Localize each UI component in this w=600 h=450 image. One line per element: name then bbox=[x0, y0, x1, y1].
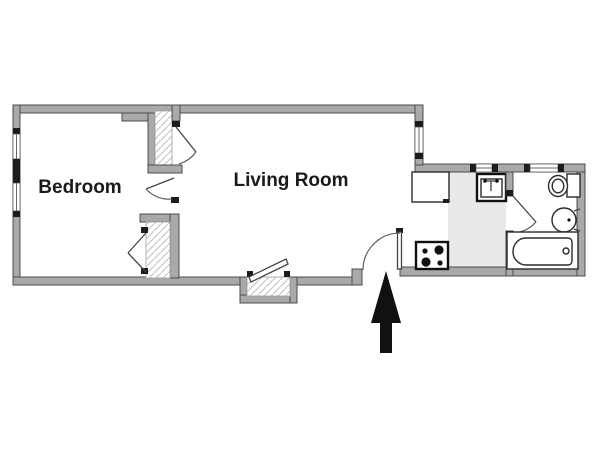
closet-door-arc bbox=[179, 152, 196, 164]
door-jamb-cap bbox=[506, 190, 513, 196]
closet-right-wall bbox=[170, 214, 179, 278]
door-jamb-cap bbox=[172, 121, 180, 127]
stove-burner bbox=[437, 260, 442, 265]
closet-hatch bbox=[146, 222, 170, 278]
window-cap bbox=[415, 121, 423, 127]
stove-burner bbox=[421, 257, 430, 266]
door-jamb-cap bbox=[141, 227, 148, 233]
bathtub-icon bbox=[507, 232, 578, 269]
window-cap bbox=[415, 153, 423, 159]
bedroom-door-leaf bbox=[146, 178, 174, 189]
bedroom-windows bbox=[13, 128, 20, 217]
closet-ledge-wall bbox=[122, 113, 149, 121]
closet-hatch bbox=[155, 111, 172, 167]
window-cap bbox=[470, 164, 476, 172]
upper-closet bbox=[122, 105, 196, 173]
entrance-door-arc bbox=[363, 233, 400, 270]
wall-segment-entry-step bbox=[352, 269, 362, 285]
wall-segment-bottom-left bbox=[13, 277, 247, 285]
bathroom-window bbox=[524, 164, 564, 172]
living-room-label: Living Room bbox=[233, 170, 348, 191]
closet-right-wall bbox=[290, 277, 297, 303]
faucet-knob bbox=[483, 179, 487, 183]
closet-left-wall bbox=[148, 113, 155, 173]
stove-icon bbox=[416, 242, 448, 269]
entrance-door bbox=[363, 228, 403, 270]
closet-right-wall bbox=[172, 105, 180, 121]
bedroom-door bbox=[146, 178, 179, 203]
window-cap bbox=[13, 128, 20, 134]
faucet-knob bbox=[495, 179, 499, 183]
bathtub-drain bbox=[563, 248, 569, 254]
window-mullion bbox=[13, 159, 20, 183]
wall-segment-bottom-mid bbox=[290, 277, 353, 285]
wall-segment-top bbox=[13, 105, 422, 113]
floor-plan-canvas: Bedroom Living Room bbox=[0, 0, 600, 450]
refrigerator-handle bbox=[443, 199, 449, 203]
livingroom-closet bbox=[240, 259, 297, 303]
kitchen-sink-icon bbox=[477, 174, 506, 201]
entrance-door-leaf bbox=[398, 232, 402, 269]
bedroom-door-arc bbox=[146, 189, 172, 199]
door-jamb-cap bbox=[171, 197, 179, 203]
window-cap bbox=[13, 211, 20, 217]
bifold-door-leaf bbox=[128, 233, 146, 253]
basin-drain bbox=[567, 218, 570, 221]
closet-door-leaf bbox=[176, 127, 196, 152]
bedroom-closet bbox=[128, 214, 179, 278]
kitchen-window bbox=[470, 164, 498, 172]
stove-burner bbox=[434, 245, 443, 254]
entrance-arrow-icon bbox=[371, 271, 401, 353]
window-cap bbox=[558, 164, 564, 172]
stove-top bbox=[416, 242, 448, 269]
stove-burner bbox=[422, 248, 427, 253]
bathroom-door-leaf bbox=[513, 196, 536, 222]
door-jamb-cap bbox=[284, 271, 290, 277]
floor-plan: Bedroom Living Room bbox=[0, 0, 600, 450]
refrigerator-icon bbox=[412, 172, 449, 202]
basin bbox=[552, 208, 576, 232]
closet-bottom-wall bbox=[148, 165, 182, 173]
bathroom-sink-icon bbox=[552, 208, 580, 232]
bifold-door-leaf bbox=[128, 253, 146, 272]
window-cap bbox=[524, 164, 530, 172]
bathroom-fixtures bbox=[507, 174, 580, 269]
bedroom-label: Bedroom bbox=[38, 177, 121, 198]
window-cap bbox=[492, 164, 498, 172]
livingroom-window bbox=[415, 121, 423, 159]
toilet-icon bbox=[549, 174, 581, 197]
toilet-bowl-inner bbox=[552, 179, 564, 193]
toilet-tank bbox=[567, 174, 580, 197]
